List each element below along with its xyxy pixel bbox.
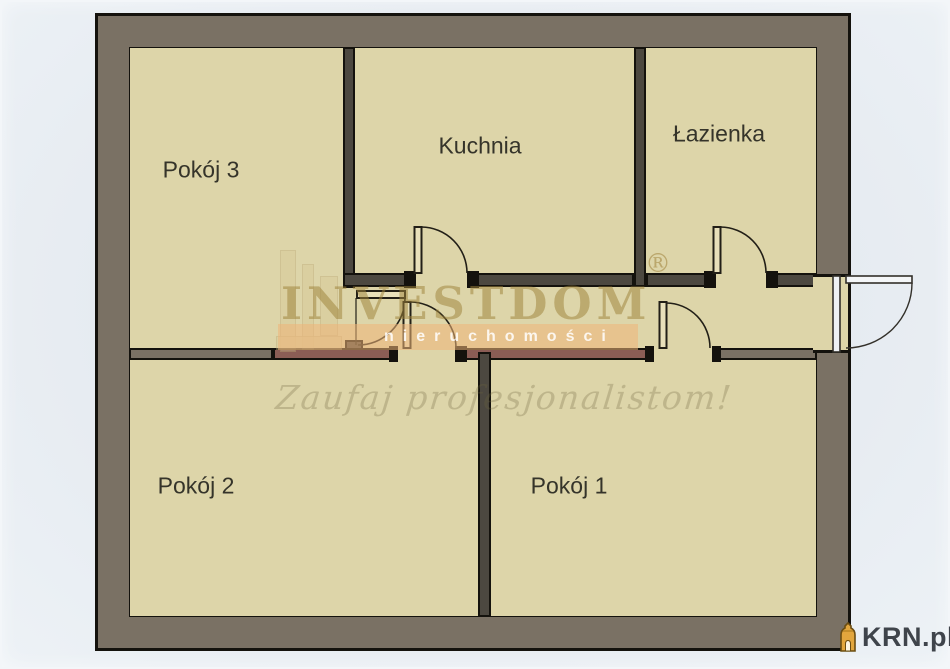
door-swing-layer xyxy=(0,0,950,669)
floorplan-screenshot: INVESTDOM ® nieruchomości Zaufaj profesj… xyxy=(0,0,950,669)
room-label-lazienka: Łazienka xyxy=(673,121,765,148)
kitchen-door xyxy=(415,227,468,273)
lighthouse-icon xyxy=(836,621,860,653)
bathroom-door xyxy=(714,227,767,273)
room-label-kuchnia: Kuchnia xyxy=(438,133,521,160)
pokoj-2-door xyxy=(404,302,457,348)
entrance-door xyxy=(833,276,912,352)
room-label-pokoj-3: Pokój 3 xyxy=(163,157,240,184)
pokoj-1-door xyxy=(660,302,711,348)
krn-logo-text: KRN.pl xyxy=(862,622,950,653)
pokoj-3-door xyxy=(356,291,405,345)
room-label-pokoj-2: Pokój 2 xyxy=(158,473,235,500)
krn-logo: KRN.pl xyxy=(836,621,950,653)
room-label-pokoj-1: Pokój 1 xyxy=(531,473,608,500)
